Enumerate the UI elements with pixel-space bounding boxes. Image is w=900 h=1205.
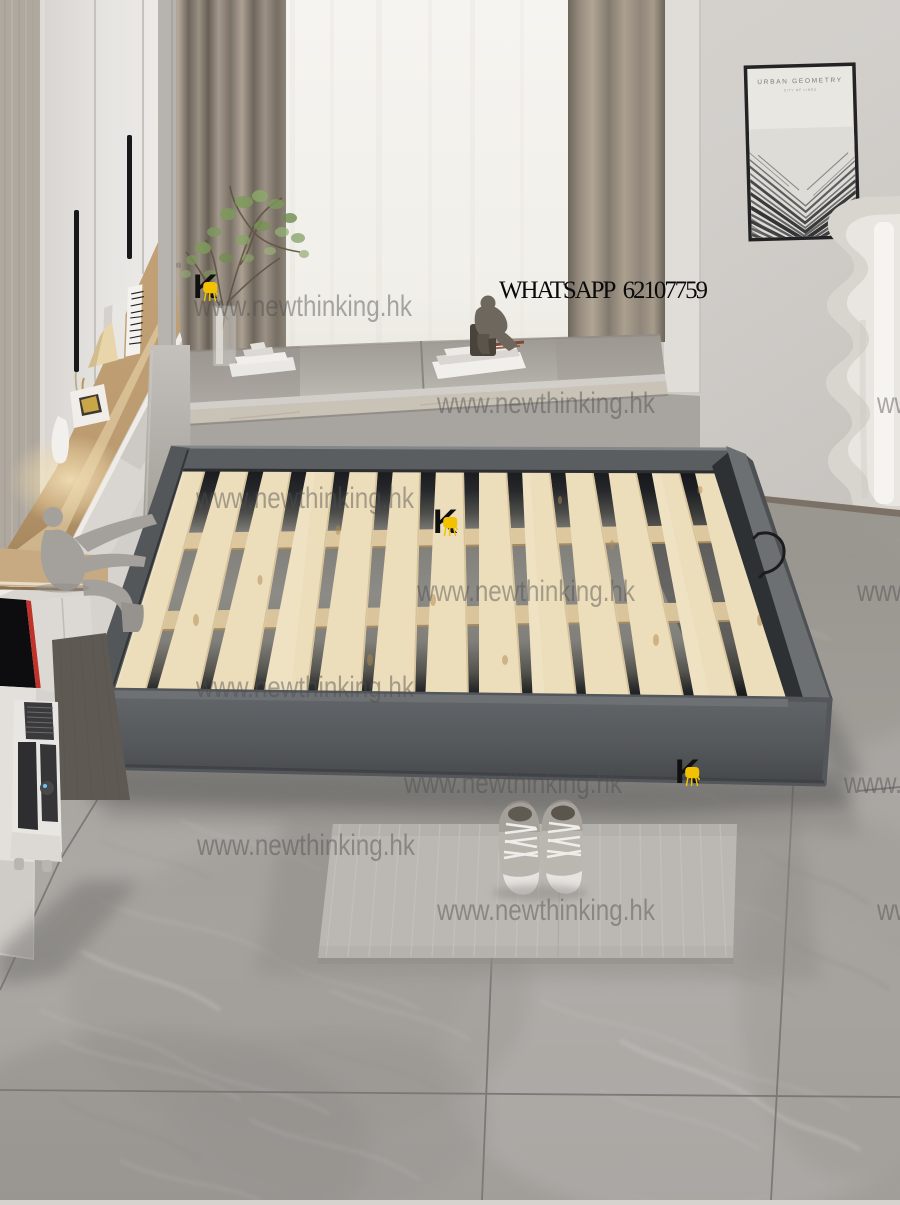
svg-text:www.newthinking.hk: www.newthinking.hk — [436, 387, 656, 420]
svg-text:www.newthinking.hk: www.newthinking.hk — [876, 387, 900, 420]
svg-text:www.newthinking.hk: www.newthinking.hk — [436, 894, 656, 927]
svg-text:www.newthinking.hk: www.newthinking.hk — [196, 829, 416, 862]
svg-text:www.newthinking.hk: www.newthinking.hk — [195, 671, 415, 704]
svg-text:®: ® — [176, 262, 182, 270]
svg-text:www.newthinking.hk: www.newthinking.hk — [856, 575, 900, 608]
svg-text:www.newthinking.hk: www.newthinking.hk — [195, 482, 415, 515]
svg-text:www.newthinking.hk: www.newthinking.hk — [876, 894, 900, 927]
svg-text:www.newthinking.hk: www.newthinking.hk — [416, 575, 636, 608]
svg-text:www.newthinking.hk: www.newthinking.hk — [843, 767, 900, 800]
svg-text:www.newthinking.hk: www.newthinking.hk — [193, 290, 413, 323]
svg-text:WHATSAPP 62107759: WHATSAPP 62107759 — [499, 277, 708, 304]
svg-text:www.newthinking.hk: www.newthinking.hk — [403, 767, 623, 800]
